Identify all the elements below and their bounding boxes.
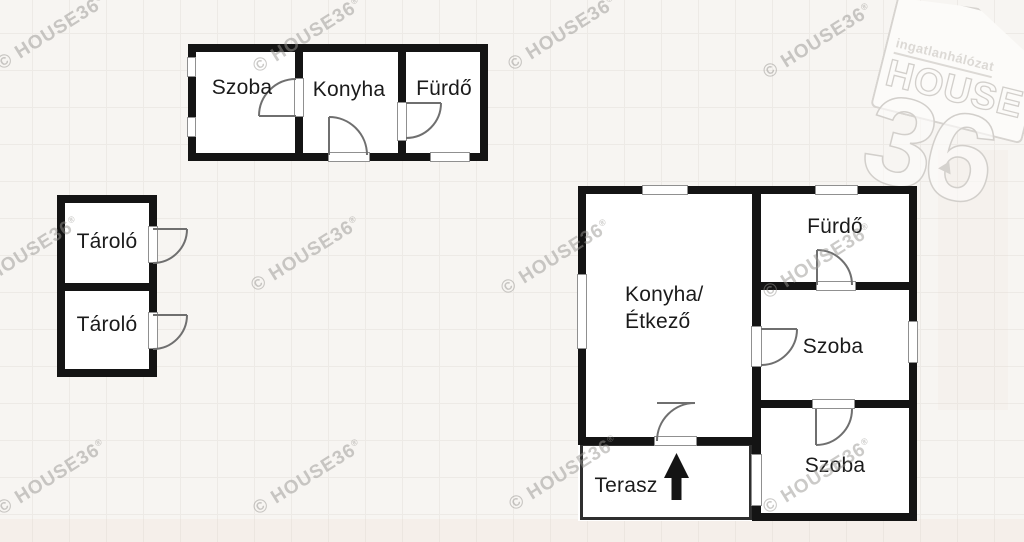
floor-plan: ingatlanhálózat HOUSE 36 xyxy=(0,0,1024,542)
room-label-furdo-top: Fürdő xyxy=(416,77,472,101)
door-arc xyxy=(406,103,441,138)
entrance-arrow-icon xyxy=(664,453,689,500)
door-arc xyxy=(329,117,367,155)
door-arc xyxy=(816,409,852,445)
room-label-terasz: Terasz xyxy=(594,474,657,498)
room-label-szoba-mid: Szoba xyxy=(803,335,864,359)
room-label-konyha-etkezo: Konyha/ Étkező xyxy=(625,281,703,335)
room-label-tarolo-2: Tároló xyxy=(77,313,138,337)
room-label-szoba-top: Szoba xyxy=(212,76,273,100)
door-arc xyxy=(761,329,797,365)
door-arc xyxy=(817,250,852,285)
door-arc xyxy=(153,315,187,349)
door-arc xyxy=(657,403,695,441)
room-label-tarolo-1: Tároló xyxy=(77,230,138,254)
door-arc xyxy=(153,229,187,263)
room-label-szoba-bottom: Szoba xyxy=(805,454,866,478)
room-label-furdo-main: Fürdő xyxy=(807,215,863,239)
room-label-konyha-top: Konyha xyxy=(313,78,385,102)
door-swings-layer xyxy=(0,0,1024,542)
